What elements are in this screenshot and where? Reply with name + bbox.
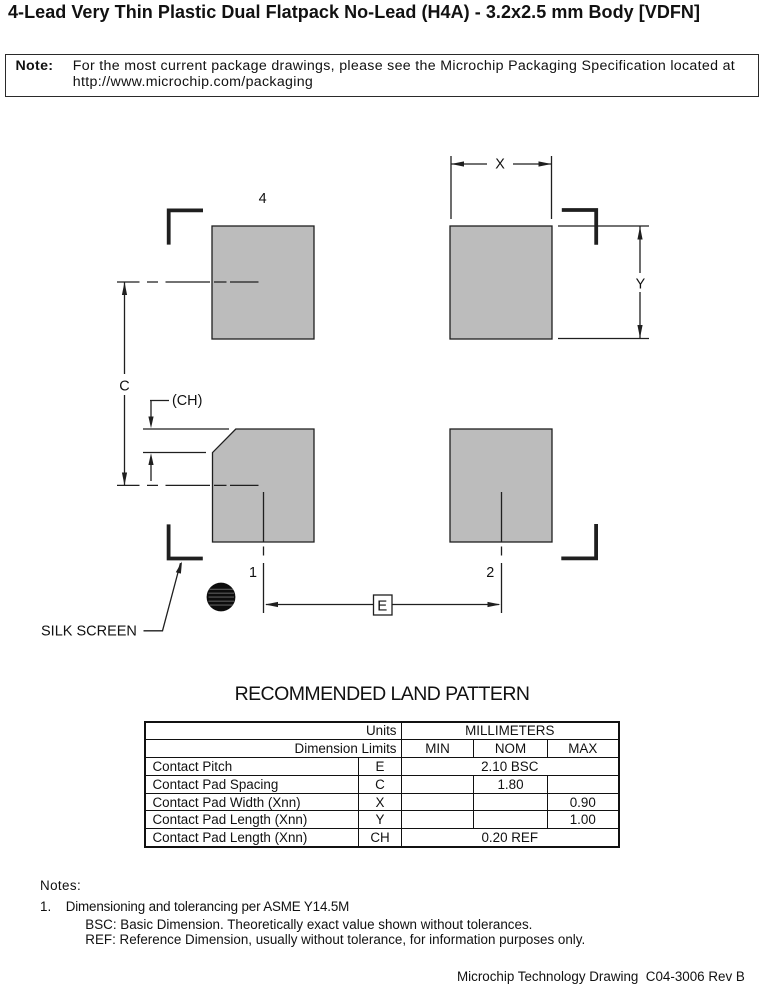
svg-text:SILK SCREEN: SILK SCREEN — [41, 624, 137, 640]
svg-text:2: 2 — [486, 565, 494, 581]
svg-text:1: 1 — [249, 565, 257, 581]
svg-text:C: C — [119, 378, 129, 394]
svg-text:4: 4 — [259, 191, 267, 207]
svg-text:Y: Y — [636, 277, 646, 293]
svg-text:X: X — [495, 157, 505, 173]
svg-text:(CH): (CH) — [172, 393, 202, 409]
svg-text:E: E — [377, 597, 387, 614]
